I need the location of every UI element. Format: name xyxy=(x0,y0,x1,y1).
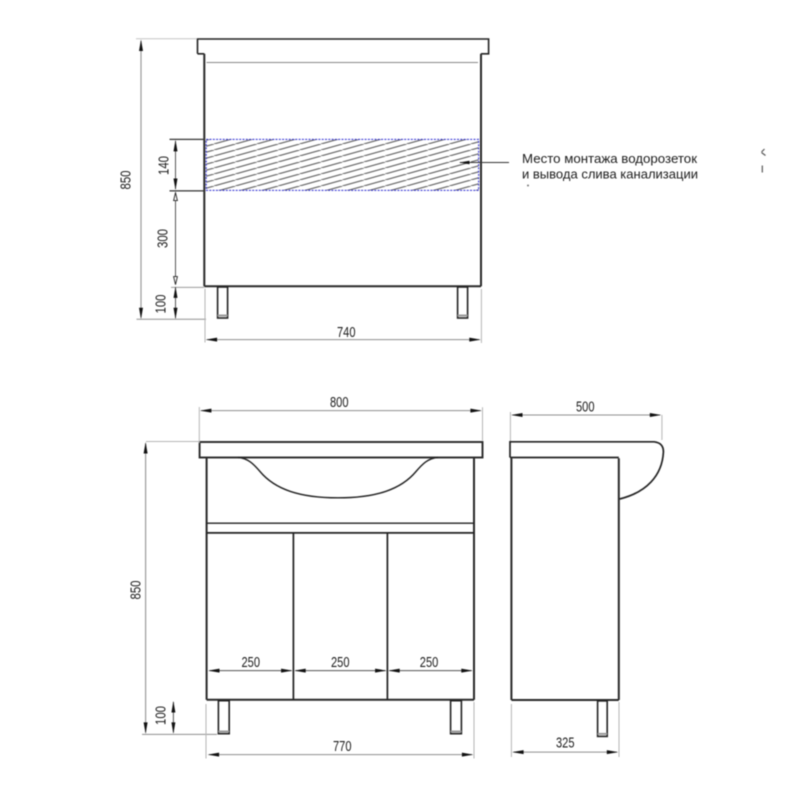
svg-text:250: 250 xyxy=(331,655,350,671)
svg-text:и вывода слива канализации: и вывода слива канализации xyxy=(522,166,698,181)
svg-text:100: 100 xyxy=(154,295,170,314)
svg-text:500: 500 xyxy=(576,399,595,415)
svg-text:325: 325 xyxy=(556,736,575,752)
svg-text:300: 300 xyxy=(156,229,172,248)
svg-text:100: 100 xyxy=(153,706,169,725)
svg-text:770: 770 xyxy=(333,739,352,755)
svg-text:740: 740 xyxy=(337,325,356,341)
svg-text:250: 250 xyxy=(242,655,261,671)
svg-text:Место монтажа водорозеток: Место монтажа водорозеток xyxy=(522,151,697,166)
svg-text:800: 800 xyxy=(330,395,349,411)
svg-text:250: 250 xyxy=(420,655,439,671)
svg-text:140: 140 xyxy=(157,156,173,175)
svg-text:850: 850 xyxy=(129,581,145,600)
svg-text:850: 850 xyxy=(119,171,135,190)
